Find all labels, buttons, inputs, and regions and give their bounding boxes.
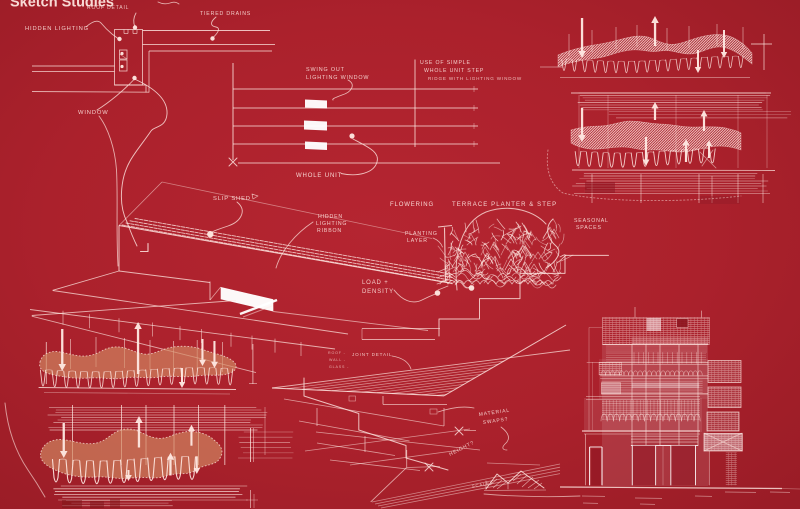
svg-text:USE OF SIMPLE: USE OF SIMPLE [420, 60, 471, 66]
svg-text:GLASS -: GLASS - [329, 365, 349, 369]
svg-text:LOAD +: LOAD + [362, 280, 389, 286]
svg-text:WALL -: WALL - [329, 358, 346, 362]
svg-text:RIBBON: RIBBON [317, 228, 342, 234]
svg-text:SLIP SHED: SLIP SHED [213, 196, 251, 202]
svg-text:HIDDEN: HIDDEN [318, 214, 343, 220]
svg-text:FLOWERING: FLOWERING [390, 202, 434, 208]
svg-text:JOINT DETAIL: JOINT DETAIL [352, 352, 392, 357]
svg-text:LIGHTING: LIGHTING [316, 221, 347, 227]
svg-text:DENSITY: DENSITY [362, 289, 394, 295]
svg-text:TERRACE PLANTER & STEP: TERRACE PLANTER & STEP [452, 202, 557, 208]
svg-text:WHOLE UNIT: WHOLE UNIT [296, 173, 342, 179]
svg-text:RIDGE WITH LIGHTING WINDOW: RIDGE WITH LIGHTING WINDOW [428, 76, 522, 81]
svg-text:SWING OUT: SWING OUT [306, 67, 345, 73]
svg-text:ROOF DETAIL: ROOF DETAIL [87, 5, 129, 11]
svg-text:WINDOW: WINDOW [78, 110, 109, 116]
svg-text:SEASONAL: SEASONAL [574, 218, 609, 224]
svg-text:LAYER: LAYER [407, 238, 428, 244]
svg-text:WHOLE UNIT STEP: WHOLE UNIT STEP [424, 68, 484, 74]
svg-text:SPACES: SPACES [576, 225, 602, 231]
svg-text:ROOF -: ROOF - [328, 351, 346, 355]
svg-text:PLANTING: PLANTING [405, 231, 438, 237]
svg-text:HIDDEN LIGHTING: HIDDEN LIGHTING [25, 26, 89, 32]
svg-text:TIERED DRAINS: TIERED DRAINS [200, 11, 251, 17]
svg-text:LIGHTING WINDOW: LIGHTING WINDOW [306, 75, 369, 81]
